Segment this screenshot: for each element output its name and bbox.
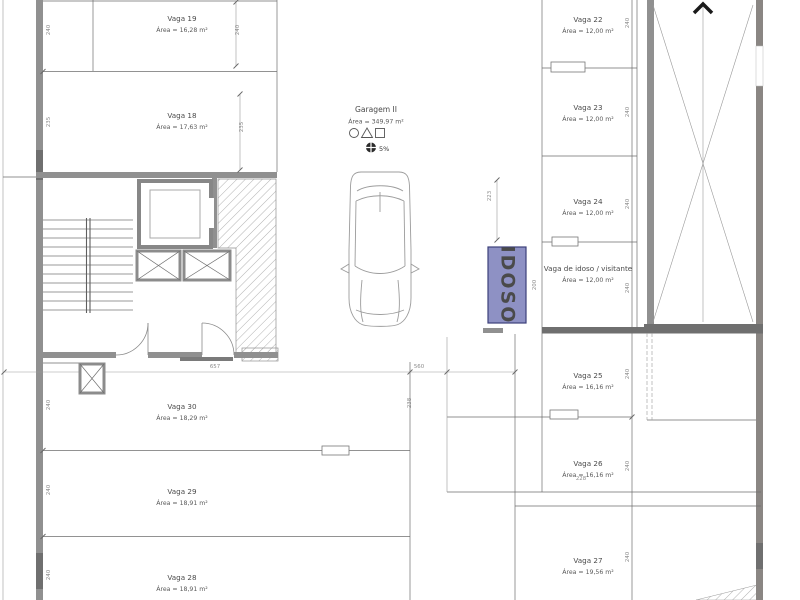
stall-area: Área = 12,00 m² bbox=[562, 114, 614, 123]
dim-label: 240 bbox=[625, 106, 631, 117]
doors bbox=[116, 323, 234, 355]
dim-label: 200 bbox=[532, 279, 538, 290]
stall-label: Vaga 25 bbox=[573, 371, 602, 380]
stall-area: Área = 16,16 m² bbox=[562, 470, 614, 479]
stall-area: Área = 18,91 m² bbox=[156, 584, 208, 593]
triangle-symbol-icon bbox=[362, 128, 373, 138]
stall-area: Área = 19,56 m² bbox=[562, 567, 614, 576]
stairs bbox=[43, 218, 133, 313]
dim-label: 240 bbox=[625, 551, 631, 562]
stall-area: Área = 12,00 m² bbox=[562, 26, 614, 35]
dimension-lines bbox=[2, 0, 635, 539]
floor-plan: Garagem II Área = 349,97 m² 5% IDOSO Vag… bbox=[0, 0, 800, 600]
dim-label: 240 bbox=[46, 399, 52, 410]
stall-area: Área = 18,29 m² bbox=[156, 413, 208, 422]
stall-label: Vaga 26 bbox=[573, 459, 603, 468]
dim-label: 240 bbox=[46, 569, 52, 580]
dim-label: 235 bbox=[239, 122, 245, 132]
stall-label: Vaga 24 bbox=[573, 197, 603, 206]
idoso-sign-label: IDOSO bbox=[497, 246, 519, 325]
dimension-ticks bbox=[2, 0, 635, 539]
stall-area: Área = 12,00 m² bbox=[562, 275, 614, 284]
stall-label: Vaga 22 bbox=[573, 15, 602, 24]
car-icon bbox=[341, 172, 419, 326]
dim-label: 238 bbox=[407, 397, 413, 408]
stall-label: Vaga 19 bbox=[167, 14, 197, 23]
stall-label: Vaga de idoso / visitante bbox=[544, 264, 633, 273]
elevator bbox=[139, 181, 214, 247]
garage-label: Garagem II Área = 349,97 m² 5% bbox=[348, 105, 404, 153]
exhaust-fan-icon bbox=[366, 143, 376, 153]
dim-label: 235 bbox=[46, 117, 52, 127]
garage-area: Área = 349,97 m² bbox=[348, 117, 404, 126]
dim-label: 240 bbox=[625, 368, 631, 379]
square-symbol-icon bbox=[376, 129, 385, 138]
stall-label: Vaga 30 bbox=[167, 402, 197, 411]
stall-area: Área = 16,16 m² bbox=[562, 382, 614, 391]
dim-label: 240 bbox=[235, 24, 241, 35]
dim-label: 240 bbox=[625, 282, 631, 293]
stall-area: Área = 17,63 m² bbox=[156, 122, 208, 131]
elevator-door-gap bbox=[207, 198, 214, 228]
dim-label: 560 bbox=[414, 364, 425, 370]
dim-label: 657 bbox=[210, 364, 220, 370]
stall-label: Vaga 18 bbox=[167, 111, 197, 120]
stall-label: Vaga 27 bbox=[573, 556, 602, 565]
floorplan-canvas: Garagem II Área = 349,97 m² 5% IDOSO Vag… bbox=[0, 0, 800, 600]
garage-symbol-icons bbox=[350, 128, 385, 138]
stall-label: Vaga 23 bbox=[573, 103, 602, 112]
dim-label: 228 bbox=[576, 476, 587, 482]
dim-label: 240 bbox=[625, 460, 631, 471]
garage-name: Garagem II bbox=[355, 105, 397, 114]
stall-area: Área = 16,28 m² bbox=[156, 25, 208, 34]
dim-label: 240 bbox=[46, 24, 52, 35]
dimension-labels: 240 235 240 240 240 240 235 238 223 200 … bbox=[46, 17, 631, 580]
stall-area: Área = 18,91 m² bbox=[156, 498, 208, 507]
stall-area: Área = 12,00 m² bbox=[562, 208, 614, 217]
ramp-slope: 5% bbox=[379, 145, 389, 153]
stall-label: Vaga 29 bbox=[167, 487, 197, 496]
circle-symbol-icon bbox=[350, 129, 359, 138]
dim-label: 240 bbox=[625, 198, 631, 209]
idoso-sign: IDOSO bbox=[488, 246, 526, 325]
stall-label: Vaga 28 bbox=[167, 573, 197, 582]
dim-label: 223 bbox=[487, 191, 493, 201]
dim-label: 240 bbox=[625, 17, 631, 28]
ramp bbox=[653, 4, 753, 322]
dim-label: 240 bbox=[46, 484, 52, 495]
